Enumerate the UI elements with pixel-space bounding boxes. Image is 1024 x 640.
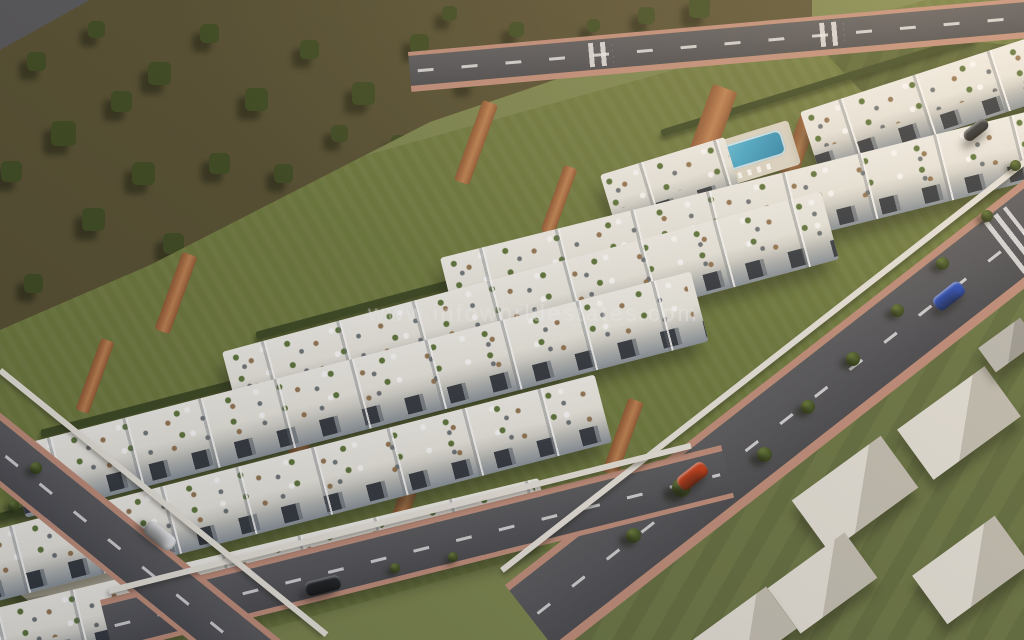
street-tree bbox=[30, 462, 42, 474]
street-tree bbox=[757, 447, 772, 462]
crosswalk bbox=[819, 21, 845, 47]
street-tree bbox=[891, 304, 904, 317]
street-tree bbox=[1010, 160, 1021, 171]
crosswalk bbox=[588, 41, 614, 67]
watermark-text: www.infoworldestates.com bbox=[368, 300, 699, 327]
street-tree bbox=[448, 552, 458, 562]
street-tree bbox=[801, 400, 815, 414]
street-tree bbox=[8, 500, 19, 511]
street-tree bbox=[981, 210, 993, 222]
street-tree bbox=[390, 563, 400, 573]
street-tree bbox=[626, 528, 641, 543]
street-tree bbox=[936, 257, 949, 270]
street-tree bbox=[846, 352, 860, 366]
aerial-estate-render: www.infoworldestates.com bbox=[0, 0, 1024, 640]
